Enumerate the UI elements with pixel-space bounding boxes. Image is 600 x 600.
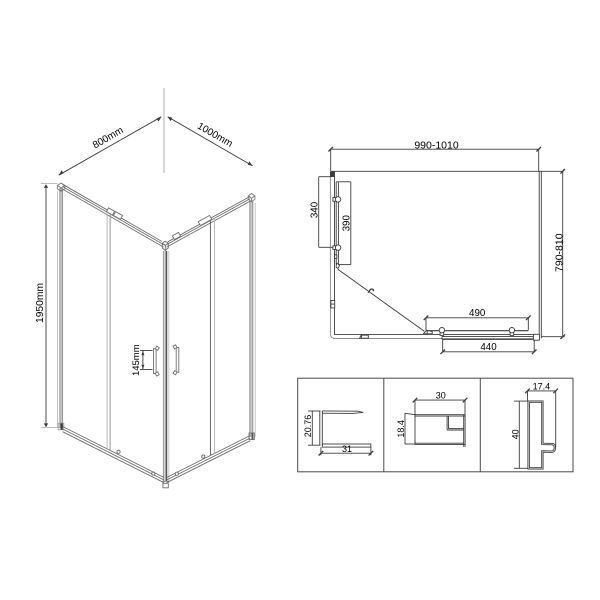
svg-text:145mm: 145mm bbox=[131, 344, 142, 376]
svg-text:30: 30 bbox=[436, 391, 446, 401]
svg-text:1950mm: 1950mm bbox=[35, 283, 46, 323]
svg-text:990-1010: 990-1010 bbox=[414, 139, 459, 151]
svg-text:40: 40 bbox=[510, 429, 520, 439]
svg-text:31: 31 bbox=[342, 444, 352, 454]
svg-text:17.4: 17.4 bbox=[533, 381, 551, 391]
svg-text:440: 440 bbox=[480, 342, 497, 353]
svg-text:790-810: 790-810 bbox=[553, 233, 565, 272]
svg-text:490: 490 bbox=[469, 308, 486, 319]
svg-text:18.4: 18.4 bbox=[396, 420, 406, 438]
svg-text:340: 340 bbox=[309, 201, 320, 218]
svg-text:390: 390 bbox=[342, 214, 353, 231]
svg-text:1000mm: 1000mm bbox=[195, 121, 234, 150]
svg-text:20.76: 20.76 bbox=[303, 415, 313, 438]
